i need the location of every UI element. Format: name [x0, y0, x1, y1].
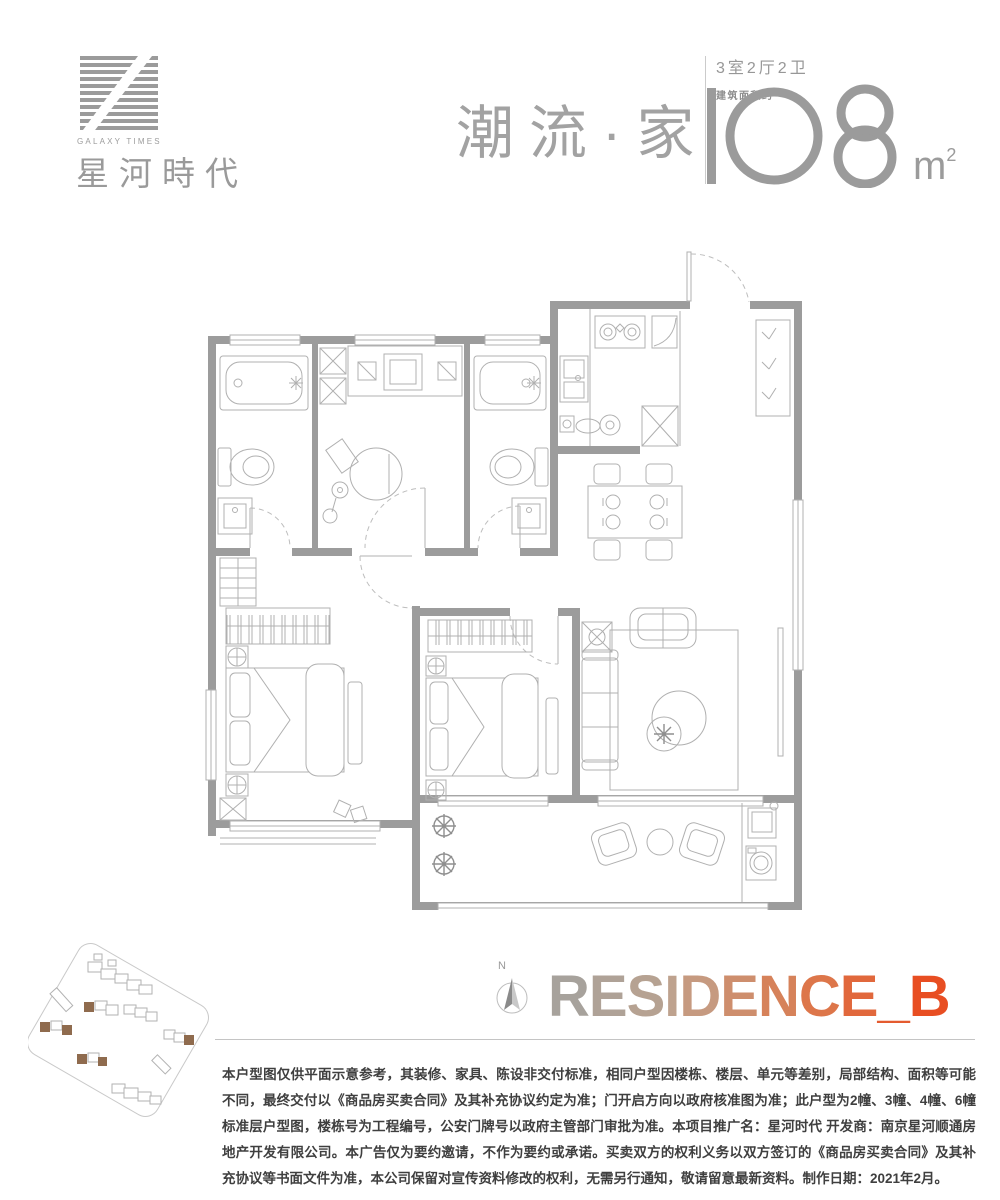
area-value-row: 108 m2: [702, 84, 956, 188]
brand-logo-icon: [80, 56, 158, 134]
residence-title-letter: R: [548, 964, 589, 1029]
residence-title-letter: D: [679, 964, 720, 1029]
residence-title: RESIDENCE_B: [548, 968, 950, 1026]
area-unit: m2: [913, 146, 956, 186]
residence-title-letter: E: [589, 964, 627, 1029]
residence-title-letter: C: [799, 964, 840, 1029]
spec-rooms: 3室2厅2卫: [716, 54, 809, 78]
residence-title-letter: B: [909, 964, 950, 1029]
residence-title-letter: _: [877, 964, 908, 1029]
compass-icon: N: [490, 960, 534, 1018]
disclaimer-text: 本户型图仅供平面示意参考，其装修、家具、陈设非交付标准，相同户型因楼栋、楼层、单…: [222, 1062, 976, 1192]
floor-plan-drawing: [190, 250, 810, 910]
residence-title-letter: I: [664, 964, 679, 1029]
residence-title-letter: E: [840, 964, 878, 1029]
residence-title-letter: E: [720, 964, 758, 1029]
site-key-plan: [28, 922, 224, 1138]
compass-north-label: N: [498, 960, 506, 972]
footer-divider: [215, 1039, 975, 1040]
area-value-figure: [702, 84, 907, 188]
residence-title-letter: S: [627, 964, 665, 1029]
brand-name-en: GALAXY TIMES: [77, 137, 162, 146]
slogan: 潮流·家: [456, 86, 709, 170]
floorplan-poster: GALAXY TIMES 星河時代 潮流·家 3室2厅2卫 建筑面积约 108 …: [0, 0, 1000, 1200]
residence-title-letter: N: [758, 964, 799, 1029]
brand-name-cn: 星河時代: [76, 147, 248, 195]
residence-block: N RESIDENCE_B: [490, 960, 950, 1026]
